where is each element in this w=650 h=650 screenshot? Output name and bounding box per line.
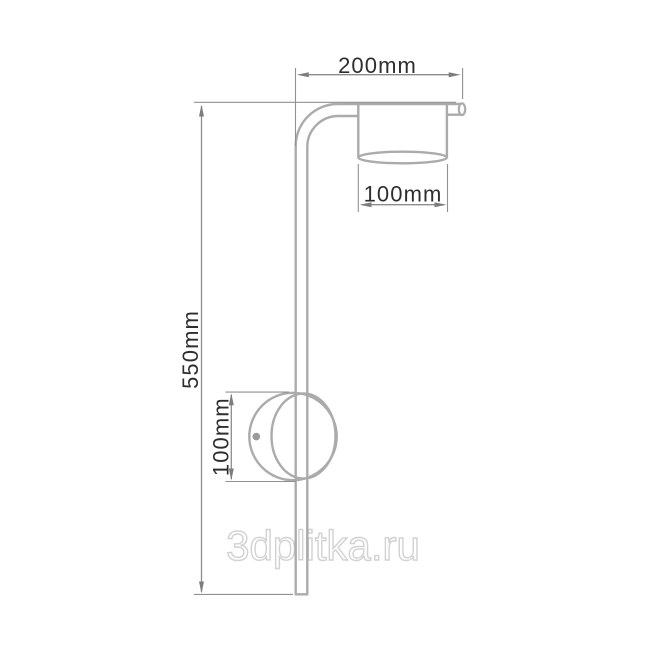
svg-text:550mm: 550mm xyxy=(178,310,203,389)
svg-text:200mm: 200mm xyxy=(338,53,417,78)
svg-text:100mm: 100mm xyxy=(364,182,443,207)
svg-text:100mm: 100mm xyxy=(208,397,233,476)
svg-text:3dplitka.ru: 3dplitka.ru xyxy=(226,522,420,569)
